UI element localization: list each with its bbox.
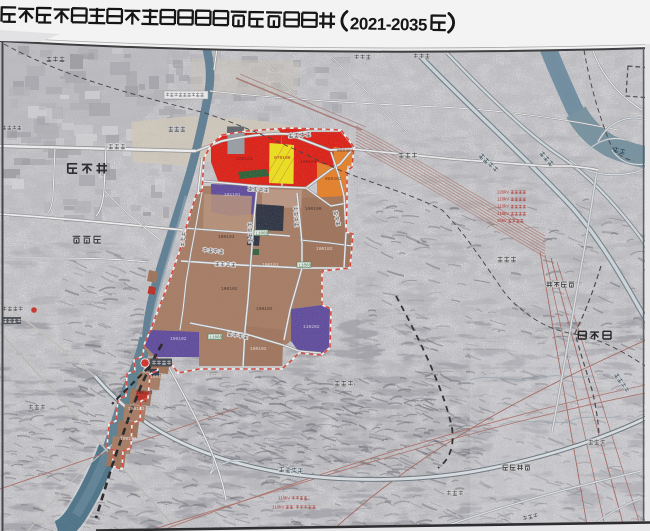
svg-text:2021-2035: 2021-2035 — [350, 14, 428, 34]
